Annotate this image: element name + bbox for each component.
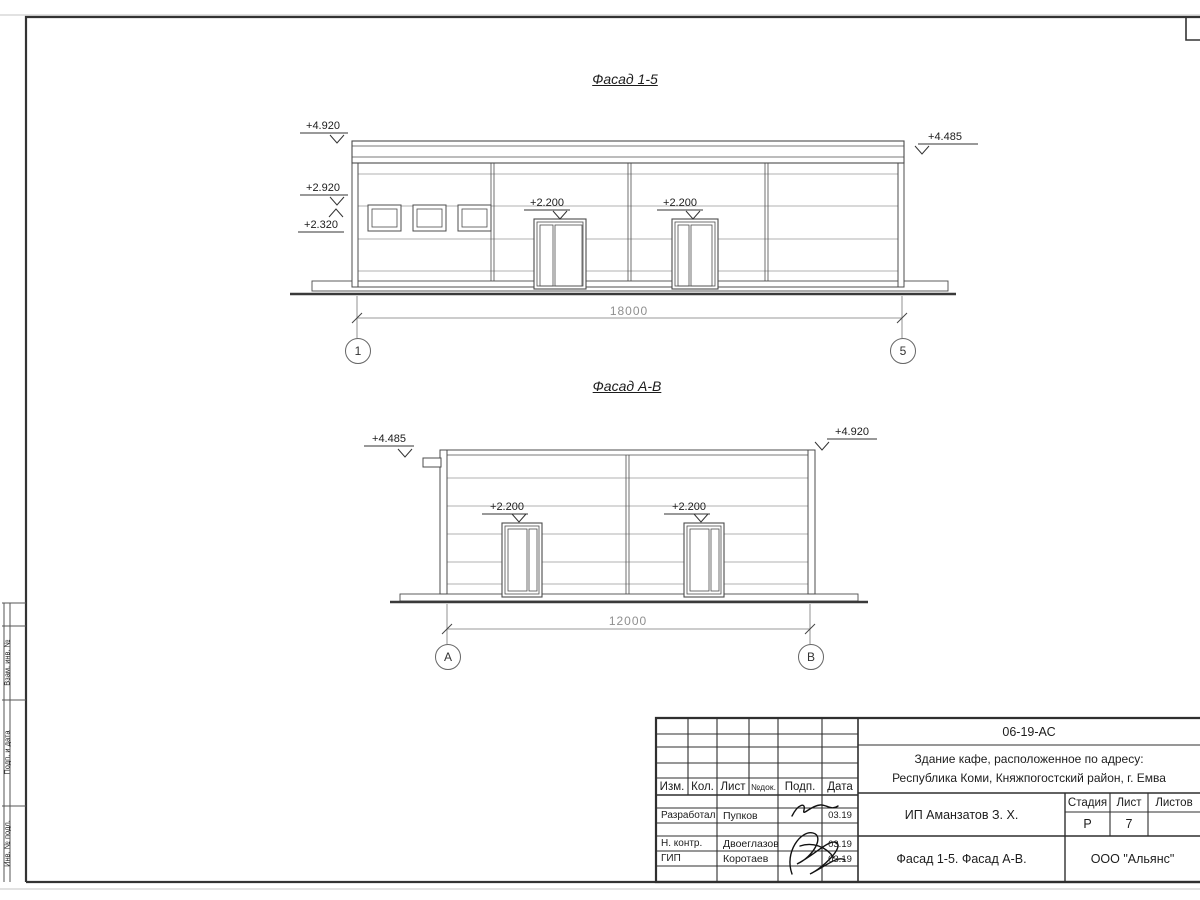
facade-a-b-title: Фасад А-В [562, 377, 692, 395]
client-name: ИП Аманзатов З. Х. [858, 793, 1065, 836]
corner-post [808, 450, 815, 594]
level-arrow-down-icon [815, 442, 829, 450]
facade-1-5-linework [290, 141, 956, 294]
level-arrow-down-icon [686, 211, 700, 219]
axis-bubble-b: В [798, 644, 824, 670]
elevation-mark-4920: +4.920 [300, 120, 346, 132]
door [684, 523, 724, 597]
col-header-ndok: №док. [749, 778, 778, 795]
col-header-list: Лист [717, 778, 749, 795]
elevation-mark-4920: +4.920 [829, 426, 875, 438]
facade-a-b-bay-divider [626, 455, 629, 594]
door [672, 219, 718, 289]
facade-1-5-title: Фасад 1-5 [560, 70, 690, 88]
roof-drain-outlet [423, 458, 441, 467]
facade-a-b-linework [390, 450, 868, 602]
organization-name: ООО "Альянс" [1065, 836, 1200, 882]
level-arrow-down-icon [553, 211, 567, 219]
col-header-data: Дата [822, 778, 858, 795]
axis-bubble-5: 5 [890, 338, 916, 364]
door [502, 523, 542, 597]
elevation-mark-2320: +2.320 [298, 219, 344, 231]
facade-a-b-siding-lines [447, 478, 808, 584]
axis-label: 5 [900, 344, 907, 358]
drawing-sheet: Взам. инв. № Подп. и дата Инв. № подл. Ф… [0, 0, 1200, 900]
level-arrow-down-icon [694, 514, 708, 522]
frame-corner-box [1186, 17, 1200, 40]
margin-label-vzam: Взам. инв. № [3, 628, 12, 698]
elevation-mark-door-left: +2.200 [524, 197, 570, 209]
margin-label-podp: Подп. и дата [3, 703, 12, 803]
elevation-mark-4485: +4.485 [366, 433, 412, 445]
plinth [312, 281, 948, 291]
facade-1-5-bay-dividers [491, 163, 768, 287]
row-role: Разработал [658, 808, 719, 823]
plinth [400, 594, 858, 601]
col-header-kol: Кол. [688, 778, 717, 795]
level-arrow-down-icon [915, 146, 929, 154]
row-date: 03.19 [822, 808, 858, 823]
row-name: Двоеглазов [719, 836, 780, 851]
row-date: 03.19 [822, 837, 858, 851]
level-arrow-down-icon [330, 135, 344, 143]
project-address-line2: Республика Коми, Княжпогостский район, г… [892, 769, 1166, 788]
axis-label: В [807, 650, 815, 664]
doc-number: 06-19-АС [858, 718, 1200, 745]
row-date: 03.19 [822, 852, 858, 866]
windows [368, 205, 491, 231]
row-role: Н. контр. [658, 836, 719, 851]
door [534, 219, 586, 289]
axis-bubble-a: А [435, 644, 461, 670]
sheet-number: 7 [1110, 812, 1148, 836]
col-header-podp: Подп. [778, 778, 822, 795]
col-header-izm: Изм. [656, 778, 688, 795]
margin-label-inv: Инв. № подл. [3, 806, 12, 882]
level-arrow-down-icon [330, 197, 344, 205]
axis-bubble-1: 1 [345, 338, 371, 364]
sheet-label: Лист [1110, 793, 1148, 812]
elevation-mark-4485: +4.485 [922, 131, 968, 143]
axis-label: А [444, 650, 452, 664]
row-name: Пупков [719, 808, 780, 823]
elevation-mark-2920: +2.920 [300, 182, 346, 194]
corner-post [440, 450, 447, 594]
level-arrow-down-icon [512, 514, 526, 522]
elevation-mark-door-right: +2.200 [657, 197, 703, 209]
project-address-line1: Здание кафе, расположенное по адресу: [914, 750, 1143, 769]
axis-label: 1 [355, 344, 362, 358]
project-address: Здание кафе, расположенное по адресу: Ре… [858, 745, 1200, 793]
dimension-12000: 12000 [578, 615, 678, 627]
stage-value: Р [1065, 812, 1110, 836]
level-arrow-up-icon [329, 209, 343, 217]
sheets-label: Листов [1148, 793, 1200, 812]
dimension-18000: 18000 [579, 305, 679, 317]
parapet [352, 141, 904, 163]
row-name: Коротаев [719, 851, 780, 866]
stage-label: Стадия [1065, 793, 1110, 812]
level-arrow-down-icon [398, 449, 412, 457]
sheet-title: Фасад 1-5. Фасад А-В. [858, 836, 1065, 882]
elevation-mark-door-right: +2.200 [666, 501, 712, 513]
row-role: ГИП [658, 851, 719, 866]
elevation-mark-door-left: +2.200 [484, 501, 530, 513]
